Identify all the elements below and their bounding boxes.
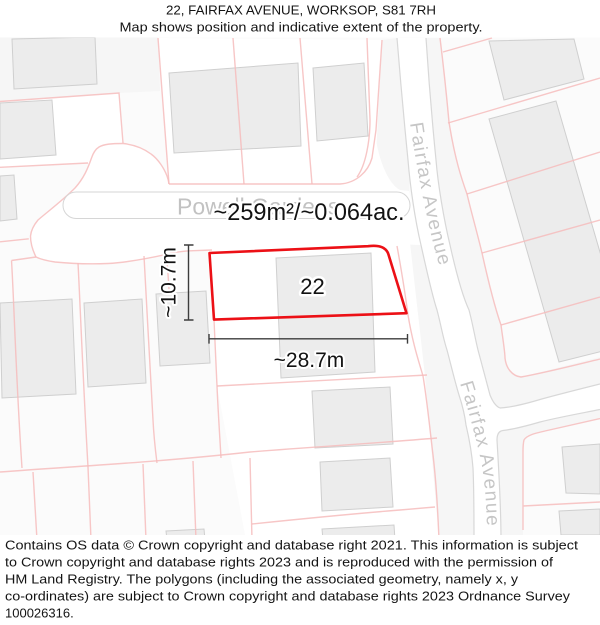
svg-text:Map shows position and indicat: Map shows position and indicative extent… <box>120 20 483 35</box>
svg-text:~28.7m: ~28.7m <box>274 349 345 372</box>
svg-text:co-ordinates) are subject to C: co-ordinates) are subject to Crown copyr… <box>5 589 571 604</box>
svg-text:HM Land Registry. The polygons: HM Land Registry. The polygons (includin… <box>5 572 519 587</box>
svg-text:Contains OS data © Crown copyr: Contains OS data © Crown copyright and d… <box>5 538 578 553</box>
svg-text:22, FAIRFAX AVENUE, WORKSOP, S: 22, FAIRFAX AVENUE, WORKSOP, S81 7RH <box>166 3 436 18</box>
svg-text:100026316.: 100026316. <box>5 606 74 621</box>
svg-text:~259m²/~0.064ac.: ~259m²/~0.064ac. <box>214 199 405 226</box>
svg-text:22: 22 <box>300 274 324 299</box>
svg-text:~10.7m: ~10.7m <box>158 247 181 318</box>
svg-text:to Crown copyright and databas: to Crown copyright and database rights 2… <box>5 555 553 570</box>
